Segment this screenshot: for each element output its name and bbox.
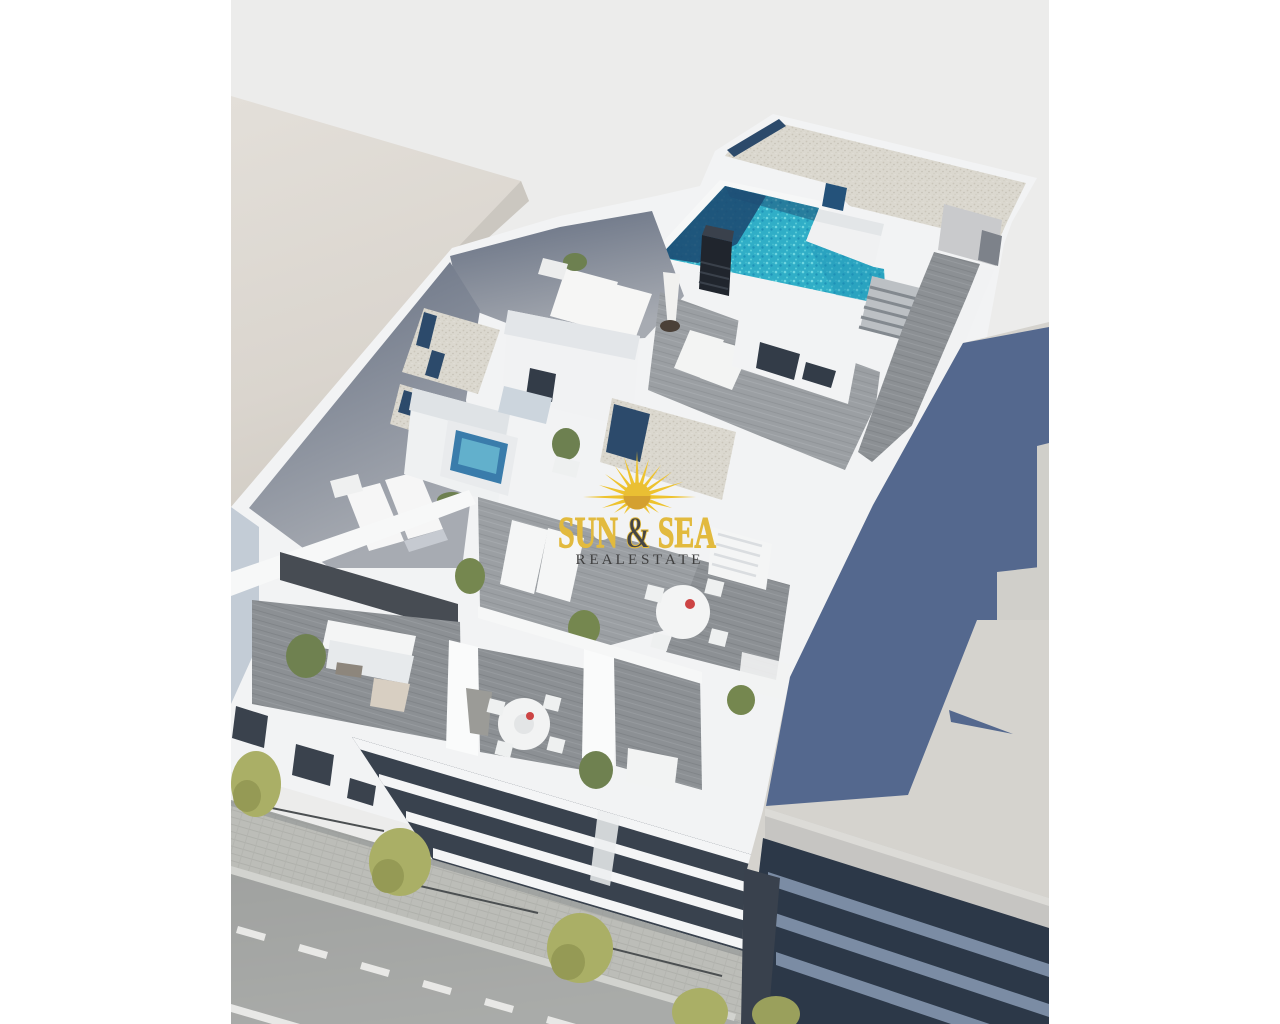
svg-text:R E A L E S T A T E: R E A L E S T A T E [576, 552, 701, 568]
svg-text:SUN & SEA: SUN & SEA [558, 508, 716, 557]
